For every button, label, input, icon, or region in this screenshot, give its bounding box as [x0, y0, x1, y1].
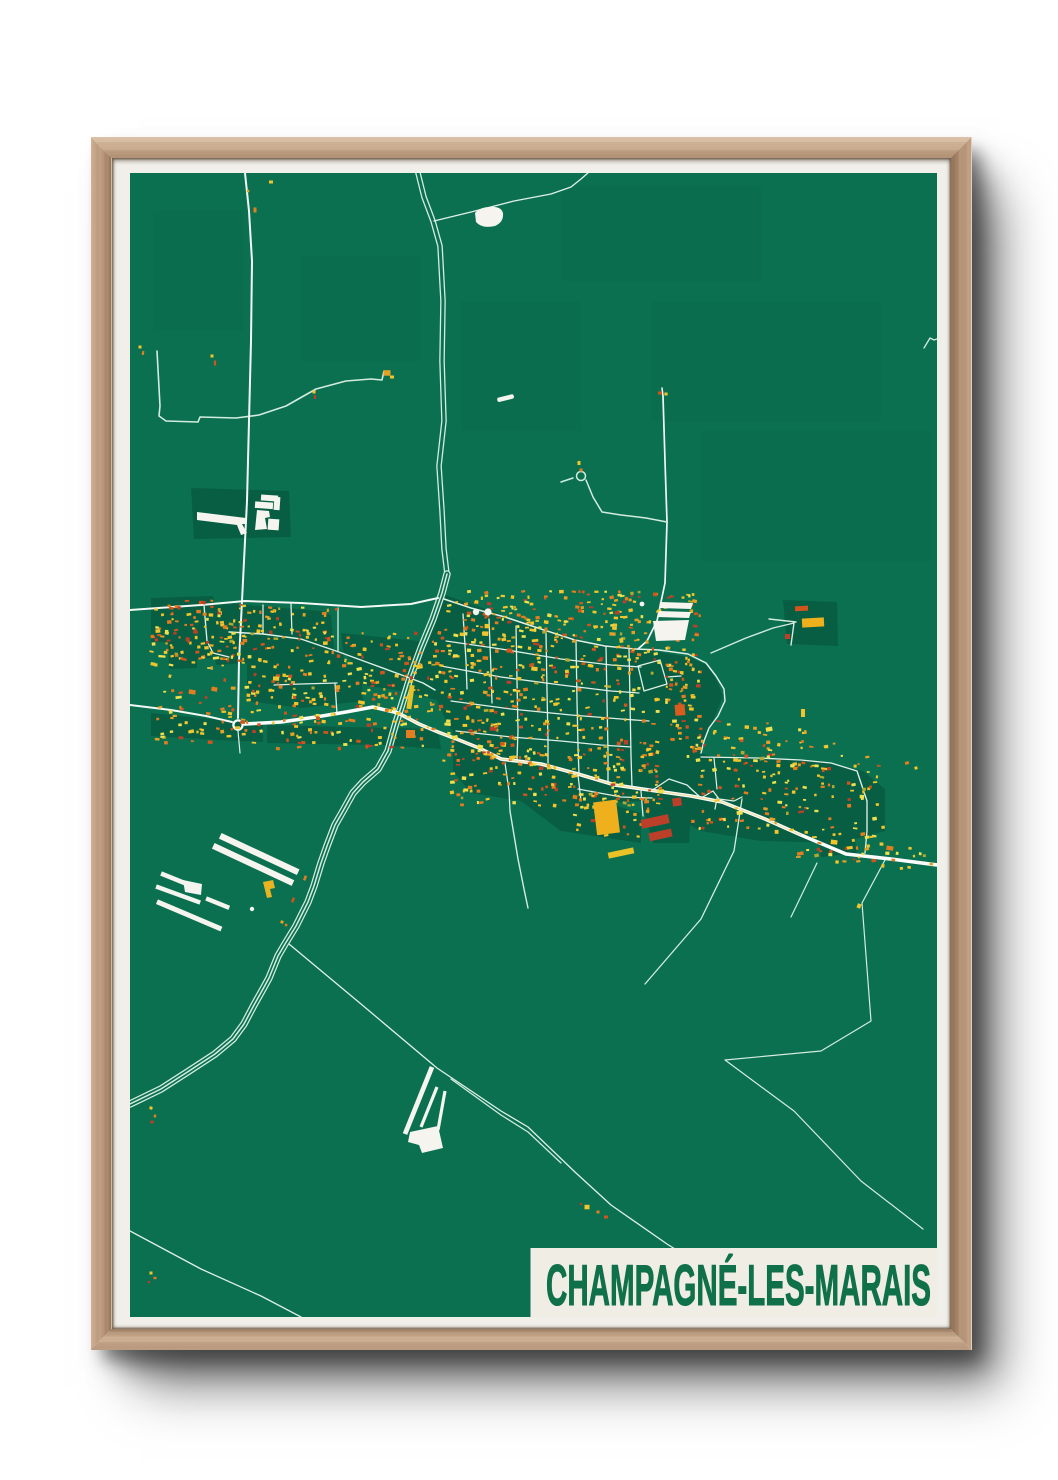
svg-text:CHAMPAGNÉ-LES-MARAIS: CHAMPAGNÉ-LES-MARAIS [546, 1254, 931, 1317]
